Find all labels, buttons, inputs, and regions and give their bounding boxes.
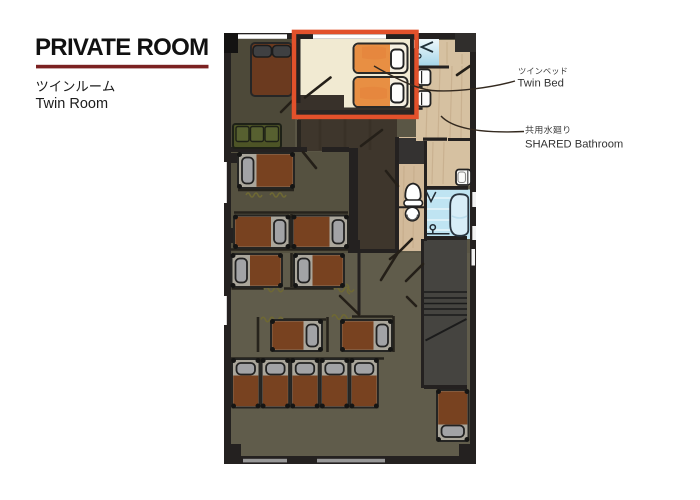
svg-text:PRIVATE ROOM: PRIVATE ROOM [35,34,208,61]
svg-text:Twin Bed: Twin Bed [518,78,564,90]
svg-text:SHARED Bathroom: SHARED Bathroom [525,139,623,151]
svg-text:Twin Room: Twin Room [36,96,109,112]
